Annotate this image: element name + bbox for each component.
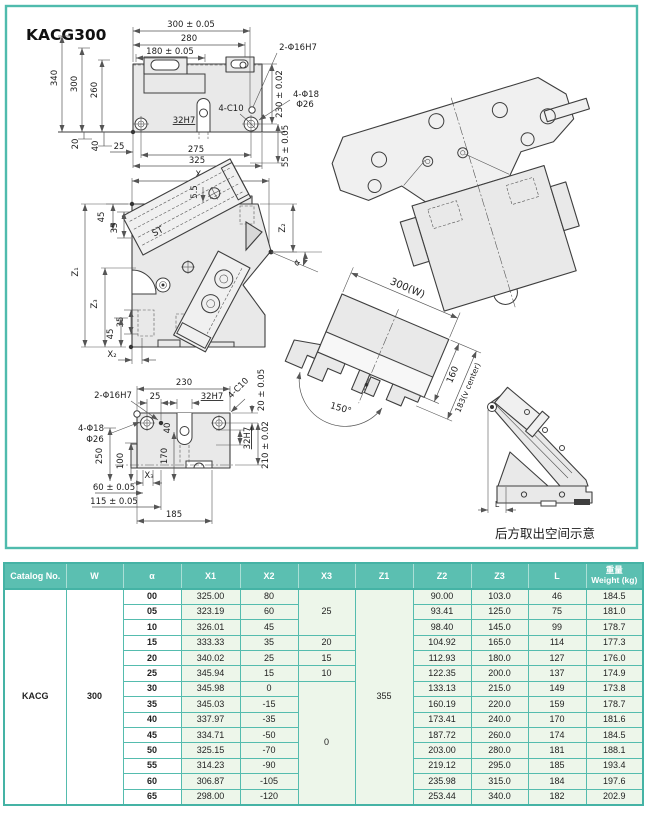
cell-x1: 298.00: [181, 789, 240, 805]
cell-l: 185: [528, 758, 586, 773]
cell-z2: 133.13: [413, 681, 471, 696]
rear-clearance-caption: 后方取出空间示意: [495, 526, 595, 541]
cell-x1: 314.23: [181, 758, 240, 773]
dim-label: 250: [95, 448, 105, 464]
cell-weight: 202.9: [586, 789, 643, 805]
cell-weight: 193.4: [586, 758, 643, 773]
dim-label: 35: [110, 223, 120, 234]
table-row: KACG 300 00 325.00 80 25 355 90.00 103.0…: [4, 589, 643, 605]
cell-w: 300: [66, 589, 123, 805]
cell-z3: 340.0: [471, 789, 528, 805]
dim-label: 32H7: [201, 392, 224, 402]
cell-weight: 173.8: [586, 681, 643, 696]
cell-z2: 173.41: [413, 712, 471, 727]
dim-label: 230: [176, 378, 192, 388]
cell-weight: 188.1: [586, 743, 643, 758]
cell-x2: -120: [240, 789, 298, 805]
cell-l: 170: [528, 712, 586, 727]
cell-z1: 355: [355, 589, 413, 805]
dim-label: 100: [116, 453, 126, 469]
col-w: W: [66, 563, 123, 589]
dim-label: 32H7: [173, 116, 196, 126]
cell-z2: 187.72: [413, 728, 471, 743]
cell-x2: 45: [240, 620, 298, 635]
cell-alpha: 20: [123, 651, 181, 666]
cell-x1: 340.02: [181, 651, 240, 666]
dim-label: 340: [50, 70, 60, 86]
cell-z2: 219.12: [413, 758, 471, 773]
cell-weight: 197.6: [586, 774, 643, 789]
pivot-hole: [156, 278, 170, 292]
cell-x2: 25: [240, 651, 298, 666]
cell-l: 182: [528, 789, 586, 805]
cell-l: 114: [528, 635, 586, 650]
dim-label: 210 ± 0.02: [261, 421, 271, 469]
cell-z3: 215.0: [471, 681, 528, 696]
cell-weight: 177.3: [586, 635, 643, 650]
cell-z3: 220.0: [471, 697, 528, 712]
dim-label: 230 ± 0.02: [275, 70, 285, 118]
dim-label: 32H7: [243, 427, 253, 450]
col-z2: Z2: [413, 563, 471, 589]
dim-label: 25: [114, 142, 125, 152]
cell-z2: 90.00: [413, 589, 471, 605]
dim-label: 60 ± 0.05: [93, 483, 135, 493]
dim-label: 20 ± 0.05: [257, 369, 267, 411]
cell-weight: 178.7: [586, 620, 643, 635]
dim-label: 300(W): [388, 276, 426, 301]
cell-x1: 323.19: [181, 604, 240, 619]
catalog-page: { "title": "KACG300", "views": { "top": …: [0, 0, 645, 823]
cell-alpha: 05: [123, 604, 181, 619]
col-alpha: α: [123, 563, 181, 589]
cell-alpha: 35: [123, 697, 181, 712]
cell-alpha: 55: [123, 758, 181, 773]
cell-x1: 325.00: [181, 589, 240, 605]
dim-label: 2-Φ16H7: [279, 43, 317, 53]
dim-label: 40: [163, 423, 173, 434]
cell-x2: -90: [240, 758, 298, 773]
dim-label: 4-Φ18: [78, 424, 104, 434]
cell-z3: 240.0: [471, 712, 528, 727]
cell-z2: 122.35: [413, 666, 471, 681]
dim-label: 160: [445, 365, 461, 385]
dim-label: 45: [106, 329, 116, 340]
cell-alpha: 10: [123, 620, 181, 635]
dim-label: 55 ± 0.05: [281, 125, 291, 167]
cell-x1: 345.03: [181, 697, 240, 712]
cell-x2: -105: [240, 774, 298, 789]
cell-x2: 80: [240, 589, 298, 605]
dim-label: 275: [188, 145, 204, 155]
cell-x2: 60: [240, 604, 298, 619]
cell-alpha: 50: [123, 743, 181, 758]
cell-x1: 345.98: [181, 681, 240, 696]
cell-l: 184: [528, 774, 586, 789]
dim-label: X₃: [144, 471, 153, 481]
col-weight-en: Weight (kg): [588, 576, 642, 586]
cell-x1: 345.94: [181, 666, 240, 681]
cell-x3: 0: [298, 681, 355, 805]
cell-z3: 165.0: [471, 635, 528, 650]
dim-label: 4-Φ18: [293, 90, 319, 100]
cell-alpha: 65: [123, 789, 181, 805]
col-weight: 重量 Weight (kg): [586, 563, 643, 589]
cell-x2: 0: [240, 681, 298, 696]
cell-x3: 20: [298, 635, 355, 650]
dim-label: 20: [71, 139, 81, 150]
cell-x2: -70: [240, 743, 298, 758]
col-l: L: [528, 563, 586, 589]
col-z3: Z3: [471, 563, 528, 589]
dim-label: 170: [160, 448, 170, 464]
cell-weight: 181.6: [586, 712, 643, 727]
dim-label: Z₁: [71, 267, 81, 276]
col-catalog: Catalog No.: [4, 563, 66, 589]
dim-label: Φ26: [86, 435, 104, 445]
cell-alpha: 00: [123, 589, 181, 605]
cell-alpha: 25: [123, 666, 181, 681]
cell-weight: 184.5: [586, 728, 643, 743]
col-x2: X2: [240, 563, 298, 589]
cell-z2: 203.00: [413, 743, 471, 758]
cell-z2: 104.92: [413, 635, 471, 650]
cell-x3: 10: [298, 666, 355, 681]
dim-label: α: [292, 258, 304, 268]
spec-table: Catalog No. W α X1 X2 X3 Z1 Z2 Z3 L 重量 W…: [3, 562, 644, 806]
cell-x2: -50: [240, 728, 298, 743]
cell-z3: 260.0: [471, 728, 528, 743]
cell-x2: -15: [240, 697, 298, 712]
cell-x1: 325.15: [181, 743, 240, 758]
dim-label: 45: [97, 212, 107, 223]
cell-alpha: 30: [123, 681, 181, 696]
dim-label: 300: [70, 76, 80, 92]
cell-z3: 295.0: [471, 758, 528, 773]
dim-label: 150°: [329, 401, 353, 417]
rotated-plan-view-drawing: [324, 60, 639, 347]
cell-x2: 15: [240, 666, 298, 681]
dim-label: 115 ± 0.05: [90, 497, 138, 507]
cell-z2: 235.98: [413, 774, 471, 789]
cell-z3: 145.0: [471, 620, 528, 635]
front-view-drawing: X₁ ST 5.5: [71, 159, 322, 364]
cell-z2: 112.93: [413, 651, 471, 666]
dim-label: 5.5: [190, 185, 200, 199]
drawing-panel: KACG300 300 ± 0.05 280 180 ± 0.05 340 30…: [0, 0, 645, 555]
dim-label: Φ26: [296, 100, 314, 110]
cell-l: 127: [528, 651, 586, 666]
cell-x3: 15: [298, 651, 355, 666]
cell-catalog: KACG: [4, 589, 66, 805]
cell-l: 174: [528, 728, 586, 743]
cell-alpha: 15: [123, 635, 181, 650]
cell-weight: 184.5: [586, 589, 643, 605]
technical-drawing-svg: KACG300 300 ± 0.05 280 180 ± 0.05 340 30…: [0, 0, 645, 555]
col-x3: X3: [298, 563, 355, 589]
dim-label: 4-C10: [218, 104, 243, 114]
spec-table-header: Catalog No. W α X1 X2 X3 Z1 Z2 Z3 L 重量 W…: [4, 563, 643, 589]
col-x1: X1: [181, 563, 240, 589]
cell-x1: 337.97: [181, 712, 240, 727]
cell-alpha: 45: [123, 728, 181, 743]
dim-label: X₂: [107, 350, 116, 360]
cell-z2: 160.19: [413, 697, 471, 712]
cell-weight: 178.7: [586, 697, 643, 712]
cell-l: 46: [528, 589, 586, 605]
cell-z3: 180.0: [471, 651, 528, 666]
dim-label: L: [495, 500, 500, 509]
cell-z2: 253.44: [413, 789, 471, 805]
cell-alpha: 60: [123, 774, 181, 789]
cell-z2: 93.41: [413, 604, 471, 619]
side-view-drawing: 230 25 32H7 4-C10 20 ± 0.05 2-Φ16H7 4-Φ1…: [78, 369, 271, 524]
cell-z3: 103.0: [471, 589, 528, 605]
cell-x1: 306.87: [181, 774, 240, 789]
cell-x1: 334.71: [181, 728, 240, 743]
cell-z3: 125.0: [471, 604, 528, 619]
rear-clearance-view-drawing: L 后方取出空间示意: [478, 384, 595, 541]
cell-x3: 25: [298, 589, 355, 636]
cell-x2: 35: [240, 635, 298, 650]
cell-x2: -35: [240, 712, 298, 727]
dim-label: 185: [166, 510, 182, 520]
dim-label: 2-Φ16H7: [94, 391, 132, 401]
cell-weight: 174.9: [586, 666, 643, 681]
dim-label: 260: [90, 82, 100, 98]
cell-l: 99: [528, 620, 586, 635]
dim-label: 325: [189, 156, 205, 166]
col-z1: Z1: [355, 563, 413, 589]
dim-label: Z₂: [278, 223, 288, 232]
cell-x1: 326.01: [181, 620, 240, 635]
dim-label: Z₃: [90, 299, 100, 308]
cell-z3: 315.0: [471, 774, 528, 789]
cell-l: 137: [528, 666, 586, 681]
cell-weight: 176.0: [586, 651, 643, 666]
cell-alpha: 40: [123, 712, 181, 727]
cell-z2: 98.40: [413, 620, 471, 635]
cell-l: 75: [528, 604, 586, 619]
cell-l: 149: [528, 681, 586, 696]
dim-label: 25: [150, 392, 161, 402]
dim-label: 300 ± 0.05: [167, 20, 215, 30]
cell-z3: 280.0: [471, 743, 528, 758]
dim-label: 280: [181, 34, 197, 44]
cell-z3: 200.0: [471, 666, 528, 681]
cell-x1: 333.33: [181, 635, 240, 650]
dim-label: 180 ± 0.05: [146, 47, 194, 57]
page-title: KACG300: [26, 26, 107, 44]
cell-l: 159: [528, 697, 586, 712]
cell-weight: 181.0: [586, 604, 643, 619]
cell-l: 181: [528, 743, 586, 758]
